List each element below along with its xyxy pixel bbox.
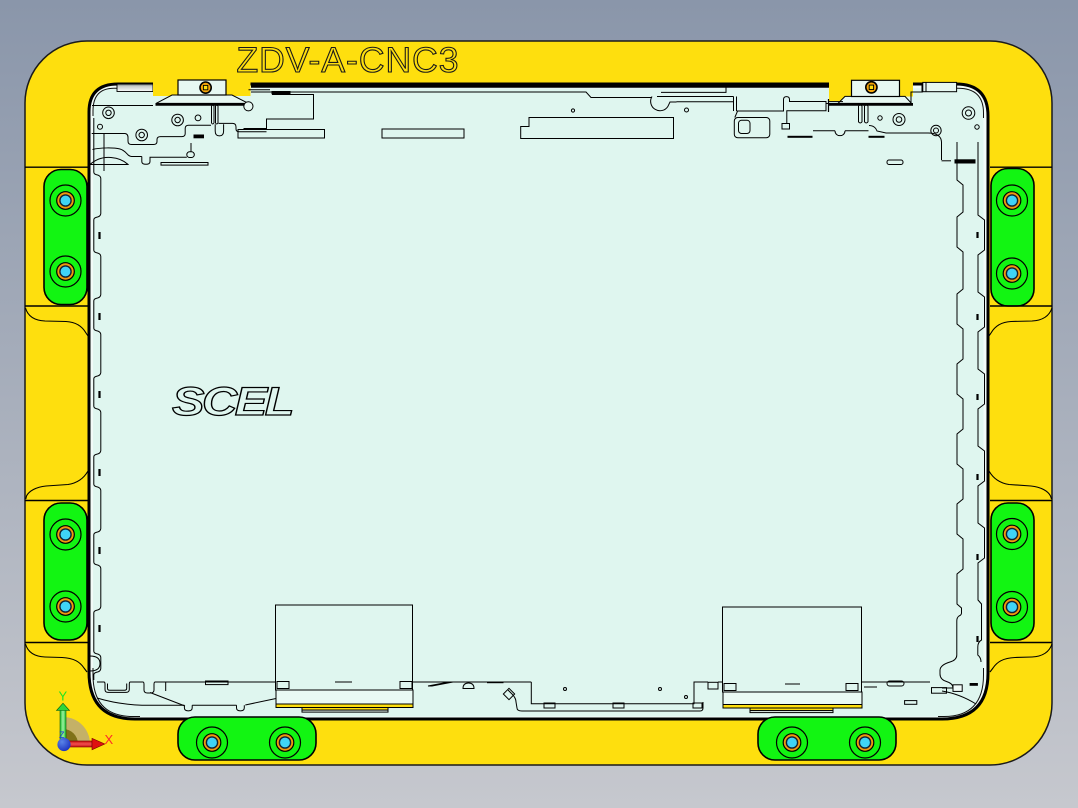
svg-text:SCEL: SCEL bbox=[172, 380, 293, 424]
svg-text:Y: Y bbox=[59, 689, 68, 704]
svg-text:ZDV-A-CNC3: ZDV-A-CNC3 bbox=[236, 40, 459, 80]
svg-text:X: X bbox=[105, 732, 114, 747]
svg-text:Z: Z bbox=[59, 730, 65, 740]
